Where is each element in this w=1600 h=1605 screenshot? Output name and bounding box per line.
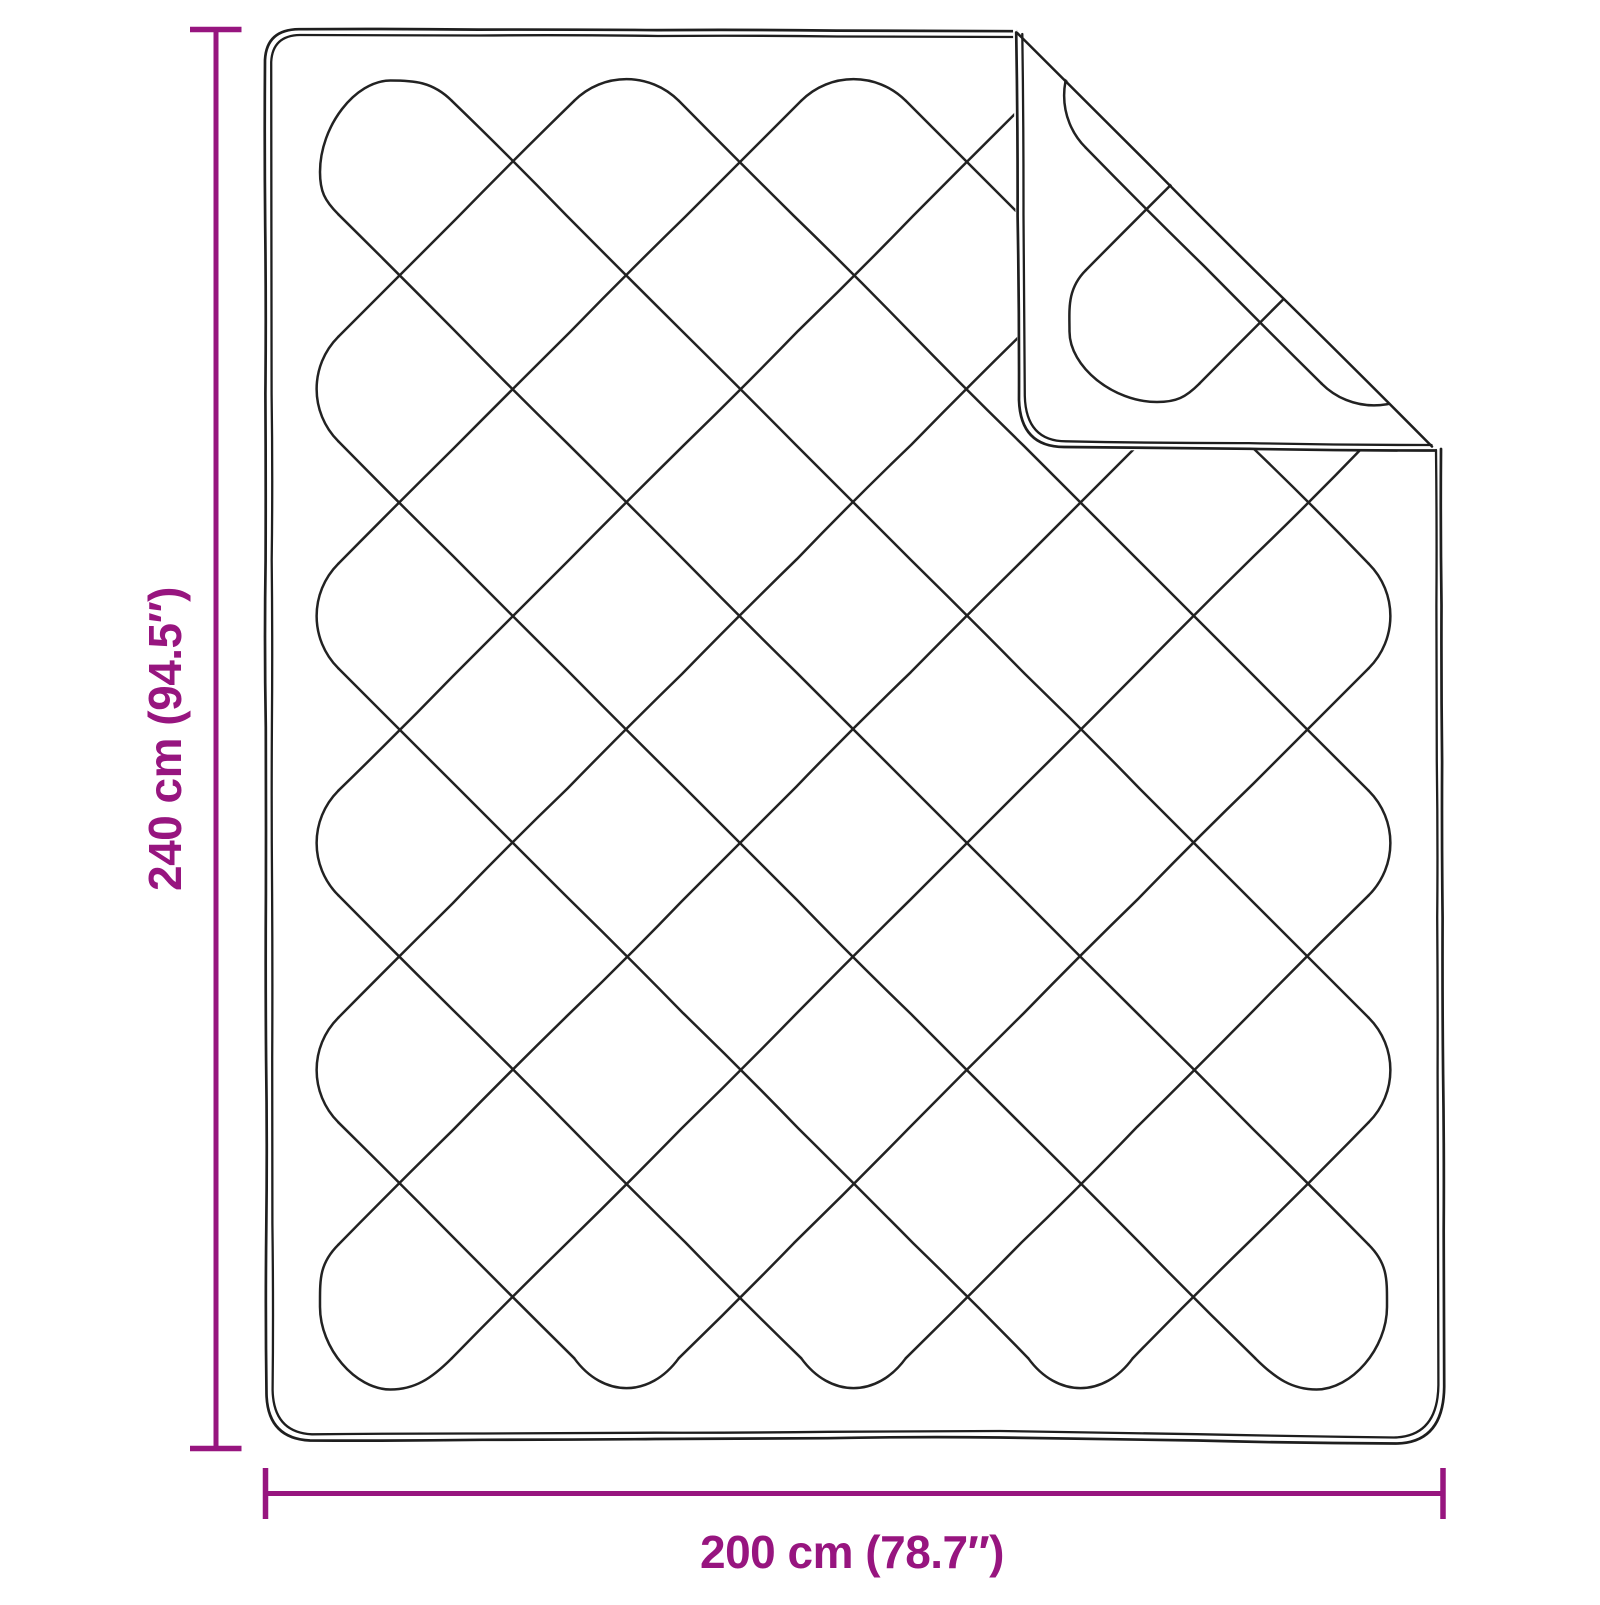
- svg-text:200 cm (78.7″): 200 cm (78.7″): [700, 1526, 1004, 1578]
- svg-text:240 cm (94.5″): 240 cm (94.5″): [139, 587, 191, 891]
